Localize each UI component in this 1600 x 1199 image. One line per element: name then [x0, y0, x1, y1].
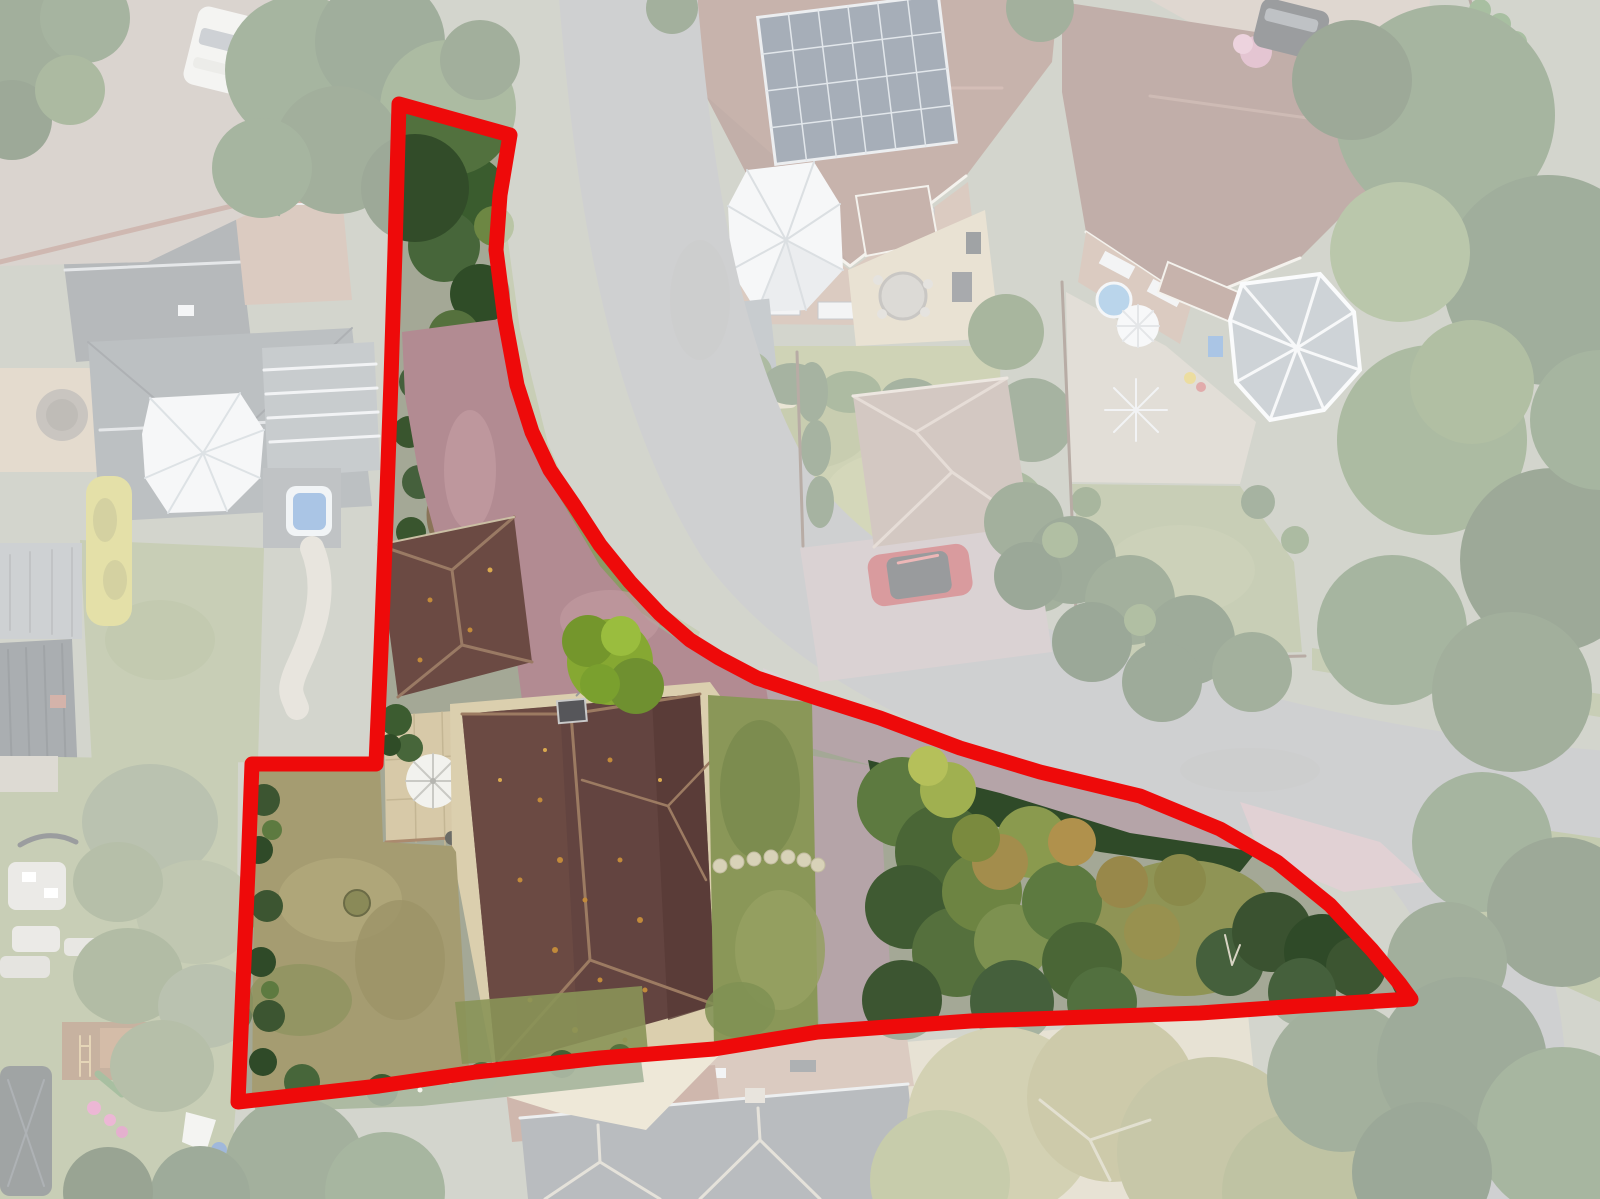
aerial-photo-stage	[0, 0, 1600, 1199]
aerial-photograph	[0, 0, 1600, 1199]
round-flower-bed	[344, 890, 370, 916]
